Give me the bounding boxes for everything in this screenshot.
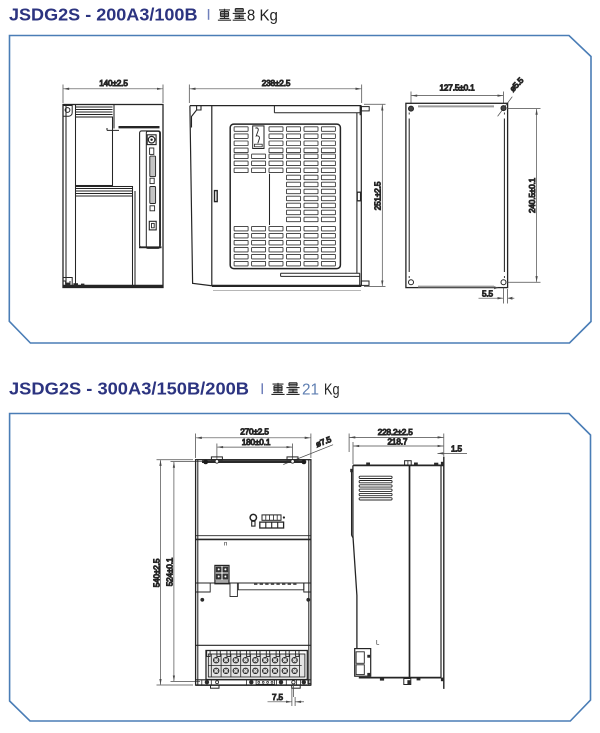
- svg-text:180±0.1: 180±0.1: [242, 438, 271, 447]
- svg-text:JSDG2S - 200A3/100B: JSDG2S - 200A3/100B: [9, 4, 198, 24]
- svg-text:127.5±0.1: 127.5±0.1: [439, 84, 475, 93]
- svg-text:251±2.5: 251±2.5: [374, 181, 383, 210]
- svg-text:Kg: Kg: [324, 382, 340, 399]
- svg-text:140±2.5: 140±2.5: [99, 79, 128, 88]
- svg-text:270±2.5: 270±2.5: [240, 428, 269, 437]
- svg-text:540±2.5: 540±2.5: [153, 558, 162, 587]
- svg-text:5.5: 5.5: [482, 290, 494, 299]
- svg-text:238±2.5: 238±2.5: [262, 79, 291, 88]
- svg-text:7.5: 7.5: [272, 693, 284, 702]
- svg-text:524±0.1: 524±0.1: [165, 557, 174, 586]
- svg-text:1.5: 1.5: [451, 445, 463, 454]
- svg-text:21: 21: [302, 382, 319, 399]
- svg-text:JSDG2S - 300A3/150B/200B: JSDG2S - 300A3/150B/200B: [9, 379, 249, 399]
- svg-text:218.7: 218.7: [388, 437, 408, 446]
- svg-text:240.5±0.1: 240.5±0.1: [528, 177, 537, 213]
- svg-text:8 Kg: 8 Kg: [247, 7, 278, 24]
- svg-text:228.2±2.5: 228.2±2.5: [378, 428, 414, 437]
- svg-text:n: n: [224, 542, 227, 548]
